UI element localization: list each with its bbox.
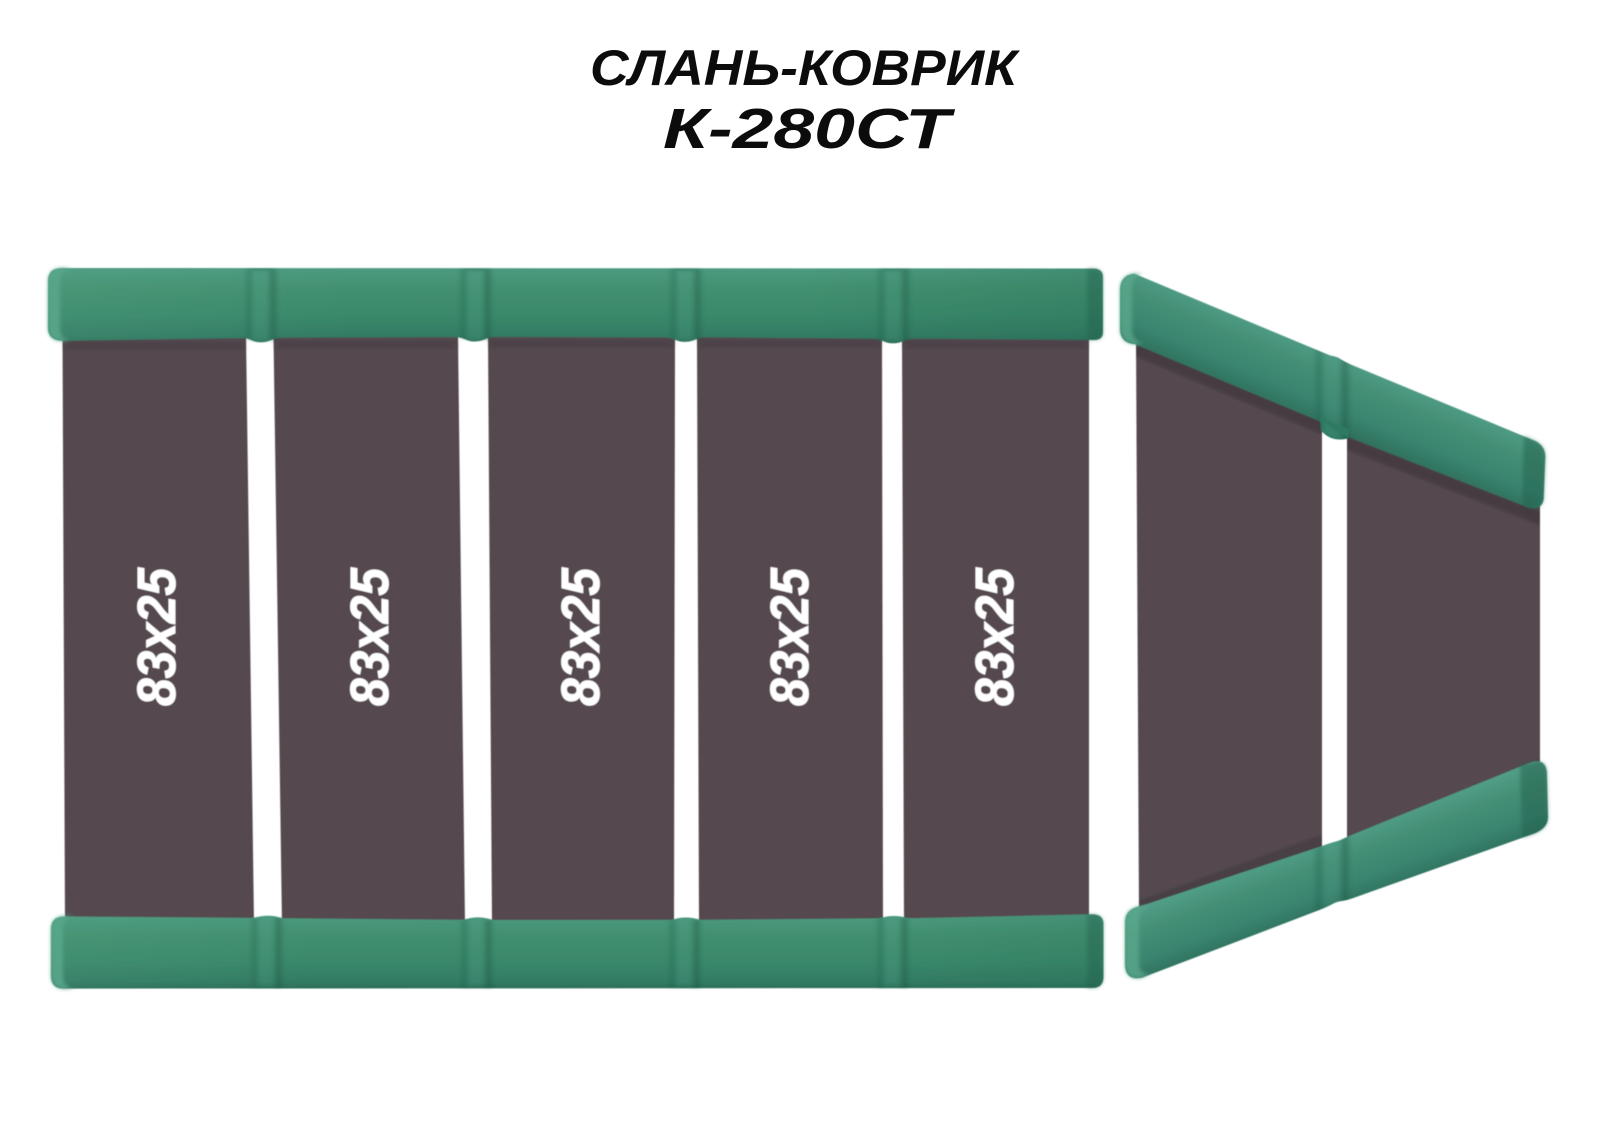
svg-text:83х25: 83х25: [760, 567, 820, 706]
svg-text:83х25: 83х25: [340, 567, 400, 706]
svg-text:К-280СТ: К-280СТ: [663, 97, 955, 161]
svg-text:83х25: 83х25: [965, 567, 1025, 706]
svg-text:83х25: 83х25: [551, 567, 611, 706]
svg-text:83х25: 83х25: [127, 567, 187, 706]
svg-text:СЛАНЬ-КОВРИК: СЛАНЬ-КОВРИК: [590, 40, 1020, 96]
